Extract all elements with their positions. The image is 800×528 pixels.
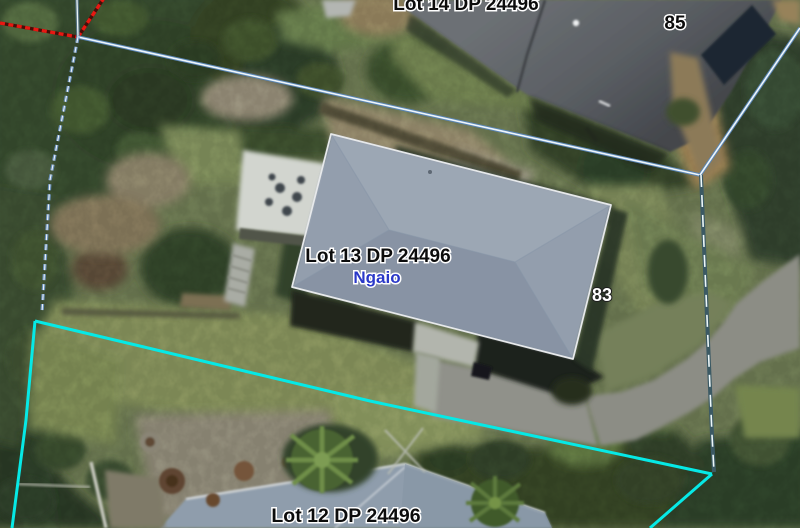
svg-text:85: 85 — [664, 13, 686, 34]
svg-text:Lot 12 DP 24496: Lot 12 DP 24496 — [271, 505, 420, 527]
svg-text:83: 83 — [592, 285, 612, 305]
svg-text:Ngaio: Ngaio — [353, 268, 400, 287]
svg-text:Lot 14 DP 24496: Lot 14 DP 24496 — [393, 0, 538, 15]
svg-text:Lot 13 DP 24496: Lot 13 DP 24496 — [305, 246, 450, 267]
